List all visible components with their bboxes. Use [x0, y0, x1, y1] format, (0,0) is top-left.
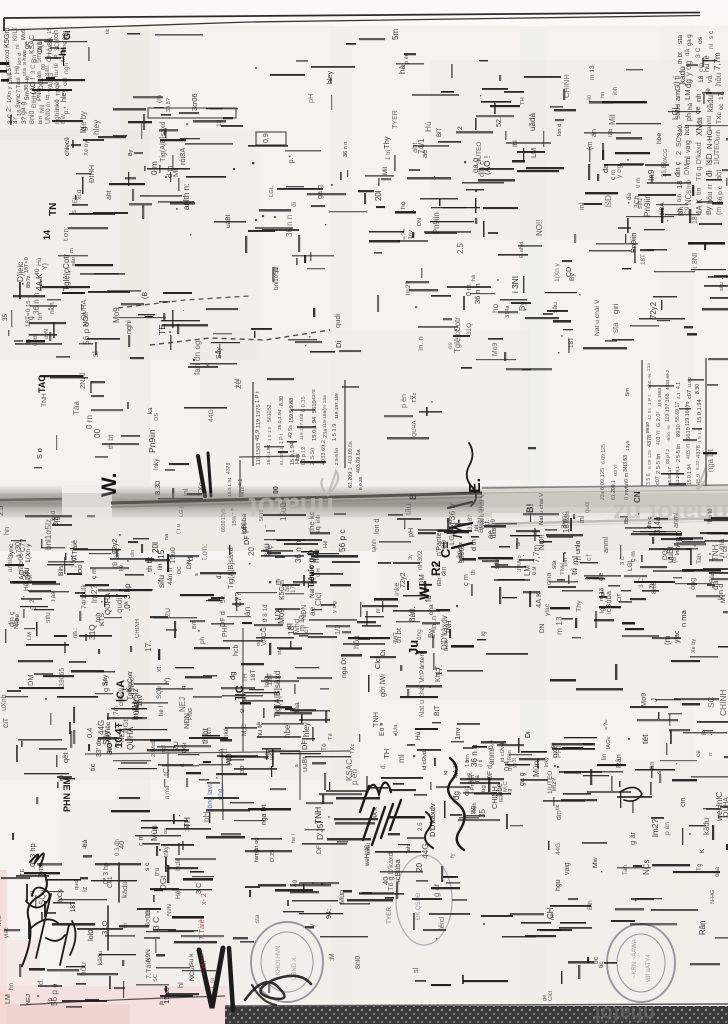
svg-text:44G: 44G: [208, 409, 215, 422]
svg-text:BiT: BiT: [192, 620, 198, 629]
svg-text:gỡi lWi: gỡi lWi: [378, 674, 387, 697]
svg-text:bnl1ơ5lz: bnl1ơ5lz: [273, 266, 280, 290]
svg-text:Mùn: Mùn: [531, 760, 541, 777]
svg-text:s c: s c: [708, 30, 715, 39]
svg-text:ce: ce: [695, 750, 702, 757]
svg-text:52.: 52.: [494, 117, 503, 127]
svg-text:c†: c†: [584, 553, 593, 561]
svg-text:Eo: Eo: [379, 727, 386, 736]
svg-text:hôu: hôu: [78, 962, 88, 976]
svg-text:Ihl: Ihl: [512, 140, 519, 147]
svg-text:PNG: PNG: [188, 708, 194, 720]
svg-text:DF: DF: [300, 740, 309, 750]
svg-text:Di: Di: [380, 650, 387, 656]
svg-text:nh :: nh :: [18, 564, 25, 575]
svg-text:tC: tC: [254, 848, 261, 855]
svg-text:hbe: hbe: [656, 133, 663, 144]
svg-text:lśD: lśD: [705, 153, 714, 165]
svg-text:18: 18: [287, 625, 296, 635]
svg-text:Tịg(A|B]sàxd: Tịg(A|B]sàxd: [159, 121, 167, 162]
svg-text:Mo9: Mo9: [492, 342, 499, 356]
svg-text:unlo: unlo: [574, 541, 582, 554]
svg-text:M,C: M,C: [0, 915, 3, 926]
svg-text:4A K: 4A K: [452, 763, 460, 778]
svg-text:4W?: 4W?: [393, 632, 399, 644]
svg-text:J, nı: J, nı: [209, 978, 216, 990]
svg-text:DM: DM: [26, 675, 35, 687]
svg-text:dvN: dvN: [44, 329, 50, 339]
svg-text:bulk: bulk: [81, 584, 88, 597]
svg-text:119.166(m: 119.166(m: [322, 405, 328, 428]
svg-text:iq: iq: [443, 770, 449, 775]
svg-text:Tịg(A|B]sàxd: Tịg(A|B]sàxd: [226, 547, 235, 589]
svg-text:lm2?: lm2?: [650, 819, 660, 837]
svg-text:0,4: 0,4: [85, 728, 94, 738]
svg-text:lin: lin: [157, 563, 164, 570]
svg-text:lol0: lol0: [86, 929, 95, 941]
svg-text:he l: he l: [291, 834, 297, 843]
svg-text:; :ct: ; :ct: [69, 554, 78, 568]
svg-text:LM: LM: [27, 632, 33, 640]
svg-text:403.09.6a: 403.09.6a: [356, 449, 362, 473]
svg-text:nh :: nh :: [549, 910, 556, 920]
svg-text:NCs: NCs: [642, 859, 651, 875]
svg-text:NCs: NCs: [684, 190, 693, 205]
svg-text:LM: LM: [683, 89, 692, 100]
svg-text:án: án: [37, 71, 43, 78]
svg-text:Tah: Tah: [406, 845, 412, 854]
svg-text:15: 15: [6, 67, 13, 75]
svg-text:ĐK QSDĐ: ĐK QSDĐ: [416, 892, 422, 920]
svg-text:lnký: lnký: [544, 757, 550, 767]
svg-text:ona: ona: [544, 572, 553, 585]
svg-text:hl: hl: [176, 982, 185, 988]
svg-text:CiT: CiT: [617, 593, 623, 602]
svg-text:Tàa: Tàa: [51, 591, 57, 602]
svg-text:ylac: ylac: [544, 603, 551, 616]
svg-text:án: án: [282, 583, 291, 592]
svg-text:8.30: 8.30: [695, 460, 701, 470]
svg-text:DN: DN: [417, 218, 423, 226]
svg-text:CHINH: CHINH: [562, 74, 571, 98]
svg-text:nga Dt: nga Dt: [261, 805, 268, 825]
svg-text:17.: 17.: [290, 584, 297, 593]
svg-text:VACG: VACG: [663, 149, 669, 164]
svg-text:đ.: đ.: [380, 763, 387, 769]
svg-text:id cl2vd: id cl2vd: [500, 743, 506, 762]
svg-text:6.09.125: 6.09.125: [647, 450, 653, 469]
svg-text:3Ch: 3Ch: [634, 195, 641, 208]
svg-text:uuBt: uuBt: [300, 757, 309, 772]
svg-text:0 m: 0 m: [45, 102, 52, 112]
svg-text:toh: toh: [52, 30, 60, 40]
svg-text:3 C: 3 C: [194, 883, 203, 894]
svg-text:TXc: TXc: [716, 111, 723, 124]
svg-text:Di: Di: [525, 731, 532, 738]
svg-text:hà: hà: [471, 274, 477, 281]
svg-text:D'D'kàxdv: D'D'kàxdv: [428, 803, 437, 837]
svg-text:lg: lg: [599, 608, 606, 613]
svg-text:18: 18: [675, 180, 684, 189]
svg-text:uầdà: uầdà: [528, 112, 537, 131]
svg-text:Rân: Rân: [698, 921, 707, 935]
svg-text:2 5-5 lin: 2 5-5 lin: [656, 454, 662, 474]
svg-text:8nl0: 8nl0: [28, 111, 36, 124]
svg-text:5610: 5610: [312, 400, 318, 413]
svg-text:s c: s c: [466, 773, 472, 780]
svg-text:hn: hn: [2, 527, 11, 535]
svg-text:Tg: Tg: [696, 863, 703, 871]
svg-text:Bih: Bih: [587, 900, 594, 910]
svg-text:00: 00: [62, 32, 69, 40]
svg-text:anlth n:: anlth n:: [182, 184, 191, 210]
svg-text:Tglệ|cCotr: Tglệ|cCotr: [127, 671, 134, 700]
svg-text:xcd: xcd: [76, 189, 83, 200]
svg-text:uXnh: uXnh: [0, 694, 8, 711]
svg-text:iq: iq: [181, 686, 187, 690]
svg-text:8.30: 8.30: [153, 481, 162, 495]
svg-text:ar: ar: [434, 562, 440, 567]
svg-text:--: --: [263, 524, 269, 528]
svg-text:th bt: th bt: [37, 39, 44, 52]
svg-text:-8b0.-%: -8b0.-%: [647, 374, 652, 390]
svg-text:PHI: PHI: [222, 625, 229, 637]
svg-text:TN: TN: [48, 203, 59, 216]
svg-text:In..n: In..n: [416, 336, 425, 351]
svg-text:he l: he l: [158, 706, 165, 716]
svg-text:uuBt: uuBt: [666, 546, 675, 563]
svg-text:anml: anml: [487, 748, 496, 765]
svg-text:Nat u chài V: Nat u chài V: [309, 563, 316, 598]
svg-text:bulk: bulk: [444, 639, 450, 651]
svg-text:8à0.: 8à0.: [45, 64, 51, 76]
svg-text:N9N: N9N: [167, 904, 173, 916]
svg-text:nh :: nh :: [694, 89, 703, 102]
svg-text:amG: amG: [673, 85, 682, 101]
svg-text:2.5: 2.5: [417, 822, 424, 831]
svg-text:74/1: 74/1: [81, 596, 88, 609]
svg-text:17.: 17.: [143, 640, 153, 652]
svg-text:cın: cın: [680, 798, 687, 807]
svg-text:6.09.125: 6.09.125: [601, 444, 607, 464]
svg-text:nga Dt: nga Dt: [341, 658, 348, 678]
svg-text:SQu: SQu: [156, 686, 163, 699]
svg-text:hà: hà: [398, 65, 407, 74]
svg-text:m 13: m 13: [297, 615, 306, 631]
svg-text:đa: đa: [626, 192, 633, 200]
svg-text:tạhh: tạhh: [371, 539, 378, 552]
svg-text:34t3.53: 34t3.53: [623, 455, 629, 472]
svg-text:Pn9iin: Pn9iin: [643, 194, 652, 217]
svg-text:vå: vå: [705, 75, 714, 83]
svg-text:=?=: =?=: [401, 228, 408, 240]
svg-text:bin: bin: [677, 194, 683, 202]
svg-text:LM: LM: [523, 565, 532, 576]
svg-text:1IUTEO: 1IUTEO: [476, 142, 483, 165]
svg-text::M: :M: [329, 953, 336, 961]
svg-text:By: By: [518, 301, 527, 311]
svg-text:weHnlC: weHnlC: [714, 792, 724, 822]
svg-text:7,7m: 7,7m: [532, 545, 541, 563]
svg-text:15: 15: [156, 549, 166, 559]
svg-text:jb: jb: [701, 731, 707, 736]
svg-text:1(Xn y: 1(Xn y: [7, 86, 13, 103]
svg-text:QUHA: QUHA: [412, 420, 418, 437]
svg-text:bin: bin: [562, 557, 569, 566]
svg-text::M: :M: [182, 824, 191, 832]
svg-text:tét: tét: [270, 753, 276, 760]
svg-text:qudi: qudi: [115, 598, 124, 613]
svg-text:đi: đi: [705, 171, 714, 177]
svg-text:tic: tic: [88, 763, 97, 771]
svg-text:hôu: hôu: [714, 73, 723, 86]
svg-text:(m: (m: [156, 95, 163, 103]
svg-text:KhLT: KhLT: [12, 26, 19, 41]
svg-text:trg l: trg l: [481, 783, 487, 792]
svg-text:din: din: [130, 550, 136, 557]
svg-text:NO!!: NO!!: [535, 220, 544, 236]
svg-text:61.209,1: 61.209,1: [675, 466, 681, 485]
svg-text:t, tà: t, tà: [720, 546, 728, 558]
svg-text:icBùba: icBùba: [393, 859, 402, 882]
svg-text:33,8?: 33,8?: [166, 98, 172, 112]
svg-text:SC: SC: [676, 137, 683, 147]
svg-text:Hệ: Hệ: [14, 65, 21, 74]
svg-text:sta: sta: [611, 322, 620, 333]
svg-text:56 p c: 56 p c: [337, 529, 347, 552]
svg-text:án: án: [242, 606, 252, 616]
svg-text:(B: (B: [140, 292, 149, 299]
svg-text:2 5-5 lin: 2 5-5 lin: [676, 444, 682, 462]
svg-text:n ma: n ma: [165, 785, 171, 799]
svg-text:Y): Y): [42, 263, 49, 270]
svg-text:8à0.: 8à0.: [677, 123, 684, 136]
svg-text:DN: DN: [186, 559, 193, 569]
svg-text:0 rn: 0 rn: [636, 178, 642, 188]
svg-text:đã: đã: [697, 117, 704, 125]
svg-text:XN: XN: [695, 125, 704, 136]
svg-text:18: 18: [698, 75, 705, 83]
svg-text:3 5 6: 3 5 6: [646, 473, 652, 485]
svg-text:NCul: NCul: [189, 965, 196, 981]
svg-text:DD: DD: [240, 765, 246, 774]
svg-text:pH: pH: [240, 523, 249, 533]
svg-text:kg: kg: [507, 788, 513, 794]
svg-text:3 C: 3 C: [151, 917, 161, 930]
svg-text:ona: ona: [428, 604, 435, 615]
svg-text:8à0.: 8à0.: [408, 606, 417, 622]
svg-text:56 p c: 56 p c: [717, 185, 724, 204]
svg-text:tic: tic: [593, 957, 600, 965]
svg-text:nghi: nghi: [124, 320, 133, 334]
svg-text:CHINH: CHINH: [718, 689, 728, 716]
svg-text:119.166(m: 119.166(m: [685, 402, 691, 426]
svg-text:Hệ: Hệ: [323, 540, 329, 548]
svg-text:K5Gm: K5Gm: [2, 28, 11, 48]
svg-text:fy: fy: [450, 853, 456, 858]
svg-text:s: s: [194, 573, 200, 576]
svg-text:kädu: kädu: [678, 66, 687, 84]
svg-text:23a: 23a: [322, 395, 327, 403]
svg-text:1 tri: 1 tri: [465, 758, 471, 767]
svg-text:ìnkê: ìnkê: [223, 727, 230, 740]
svg-text:ga g: ga g: [315, 185, 324, 199]
svg-text:35: 35: [2, 313, 9, 321]
svg-text:lon d: lon d: [557, 124, 563, 136]
svg-text:đ.: đ.: [36, 979, 45, 985]
svg-text:40: 40: [117, 841, 126, 849]
svg-text:(l tỉ: (l tỉ: [477, 759, 484, 767]
svg-text:dm: dm: [431, 630, 437, 638]
svg-text:Hù: Hù: [423, 121, 433, 132]
svg-text:d th: d th: [470, 539, 478, 551]
svg-text:15.0,1.94: 15.0,1.94: [277, 409, 283, 430]
svg-text:DGt: DGt: [159, 875, 168, 890]
svg-text:SC: SC: [707, 697, 716, 708]
svg-text:1nv: 1nv: [408, 230, 414, 239]
svg-text:4378: 4378: [696, 445, 702, 458]
svg-text:s: s: [656, 771, 663, 774]
svg-text:NCs: NCs: [14, 618, 20, 629]
svg-text:BiT: BiT: [434, 705, 441, 716]
svg-text:TH: TH: [382, 749, 391, 759]
svg-text:61.209,1: 61.209,1: [348, 467, 354, 488]
svg-text:Xe by: Xe by: [691, 639, 697, 653]
svg-text:kädu: kädu: [120, 881, 129, 898]
svg-text:14: 14: [42, 230, 52, 240]
svg-text:00: 00: [273, 486, 280, 494]
svg-text:Hba: Hba: [295, 453, 301, 464]
svg-text:15.0,1.94: 15.0,1.94: [312, 416, 318, 441]
svg-text:ông: ông: [416, 629, 423, 640]
svg-text:Tê: Tê: [119, 564, 125, 572]
svg-text:3?: 3?: [21, 116, 28, 124]
svg-text:31Q: 31Q: [466, 323, 473, 335]
svg-text:1(Xn y: 1(Xn y: [554, 262, 561, 282]
svg-text:Xe by: Xe by: [84, 141, 90, 156]
svg-text:ka: ka: [147, 407, 154, 414]
svg-text:ZU: ZU: [649, 581, 656, 589]
svg-text:4.1: 4.1: [676, 382, 682, 389]
svg-text:hbe: hbe: [283, 724, 292, 738]
svg-text:tic: tic: [555, 804, 561, 810]
svg-text:403 Yl: 403 Yl: [656, 431, 662, 445]
svg-text:Mo9: Mo9: [21, 29, 27, 40]
svg-text:5m: 5m: [391, 29, 400, 40]
svg-text:lnký: lnký: [163, 845, 170, 857]
svg-text:n'Pảnten: n'Pảnten: [419, 653, 426, 679]
svg-text:1IUTEO: 1IUTEO: [714, 139, 721, 165]
svg-text:t.ơn:: t.ơn:: [63, 227, 70, 241]
svg-text:15u0: 15u0: [168, 547, 177, 564]
svg-text:ph: ph: [677, 208, 684, 216]
svg-text:Iz: Iz: [608, 132, 614, 137]
svg-text:3v: 3v: [408, 554, 414, 560]
svg-text:In9: In9: [686, 180, 693, 189]
svg-text:m: m: [573, 556, 583, 563]
svg-text:23a: 23a: [323, 428, 329, 438]
svg-text:TH: TH: [242, 673, 249, 682]
svg-text:52.: 52.: [220, 594, 227, 603]
svg-text:ge: ge: [596, 572, 605, 581]
svg-text:ngh: ngh: [63, 63, 70, 74]
svg-text:uâBl: uâBl: [225, 214, 232, 228]
svg-text:xcd: xcd: [5, 50, 11, 59]
svg-text:1 P t: 1 P t: [255, 391, 261, 403]
svg-text:uaBl: uaBl: [492, 526, 498, 538]
svg-text:DN: DN: [539, 623, 546, 633]
svg-text:bin: bin: [38, 116, 44, 124]
svg-text:tét: tét: [474, 524, 480, 531]
svg-text:LGL: LGL: [269, 185, 275, 197]
svg-text:tin: tin: [695, 187, 703, 195]
svg-text:VACG: VACG: [261, 627, 268, 646]
svg-text:Xe by: Xe by: [79, 111, 88, 131]
svg-text:3ync: 3ync: [8, 543, 15, 558]
svg-text:họ: họ: [400, 201, 407, 209]
svg-text:ga g: ga g: [687, 34, 693, 46]
svg-text:lm2?: lm2?: [405, 281, 412, 295]
svg-text:tC: tC: [162, 768, 171, 776]
svg-text:Iz: Iz: [82, 886, 89, 892]
svg-text:LM: LM: [529, 148, 538, 158]
svg-text:DF: DF: [316, 845, 323, 854]
svg-text:ç m: ç m: [91, 568, 98, 579]
svg-text:N-HG: N-HG: [705, 129, 714, 149]
svg-text:K: K: [699, 848, 706, 853]
svg-text:fan dn og: fan dn og: [192, 340, 202, 375]
svg-text:n ma: n ma: [679, 609, 688, 627]
svg-text:40: 40: [381, 876, 390, 885]
svg-text:31Q: 31Q: [100, 920, 109, 935]
svg-text:bnl1ơ5lz: bnl1ơ5lz: [44, 519, 53, 550]
svg-text:lg: lg: [481, 631, 487, 636]
svg-text:Tê: Tê: [321, 743, 328, 751]
svg-text:CHINH: CHINH: [135, 619, 141, 638]
svg-text:sâu: sâu: [71, 257, 77, 266]
svg-text:72y2: 72y2: [398, 572, 407, 588]
svg-text:dâ: dâ: [684, 48, 691, 56]
svg-text:55.69,17: 55.69,17: [675, 402, 681, 422]
svg-text:45,9: 45,9: [696, 474, 702, 485]
svg-text:tình: tình: [715, 129, 722, 140]
svg-text:20: 20: [247, 546, 256, 556]
svg-text:sl: sl: [411, 967, 420, 973]
svg-text:p ên: p ên: [404, 53, 410, 64]
svg-text:Tàa: Tàa: [72, 401, 81, 415]
svg-text:nH302: nH302: [417, 550, 424, 570]
svg-text:toh: toh: [95, 613, 102, 622]
svg-text:44G: 44G: [555, 843, 562, 855]
svg-text:DD: DD: [78, 564, 84, 573]
svg-text:ç m: ç m: [461, 574, 470, 586]
svg-text:4.1: 4.1: [676, 392, 681, 399]
svg-text:56 p c: 56 p c: [50, 984, 59, 1006]
svg-text:đi: đi: [82, 845, 88, 849]
svg-text:lnký: lnký: [675, 545, 681, 555]
svg-text:Pn9iin: Pn9iin: [432, 212, 441, 234]
svg-text:nh :: nh :: [73, 628, 79, 638]
svg-text:20: 20: [415, 862, 424, 872]
svg-text:1(Xn y: 1(Xn y: [25, 543, 32, 563]
svg-text:aht: aht: [106, 190, 113, 200]
svg-text:1nv: 1nv: [453, 727, 462, 740]
svg-text:qudi: qudi: [74, 879, 80, 890]
svg-text:anml: anml: [706, 115, 713, 130]
svg-text:g ăr: g ăr: [628, 831, 637, 845]
svg-text:0,9: 0,9: [263, 133, 270, 143]
svg-text:lon d: lon d: [373, 519, 381, 534]
